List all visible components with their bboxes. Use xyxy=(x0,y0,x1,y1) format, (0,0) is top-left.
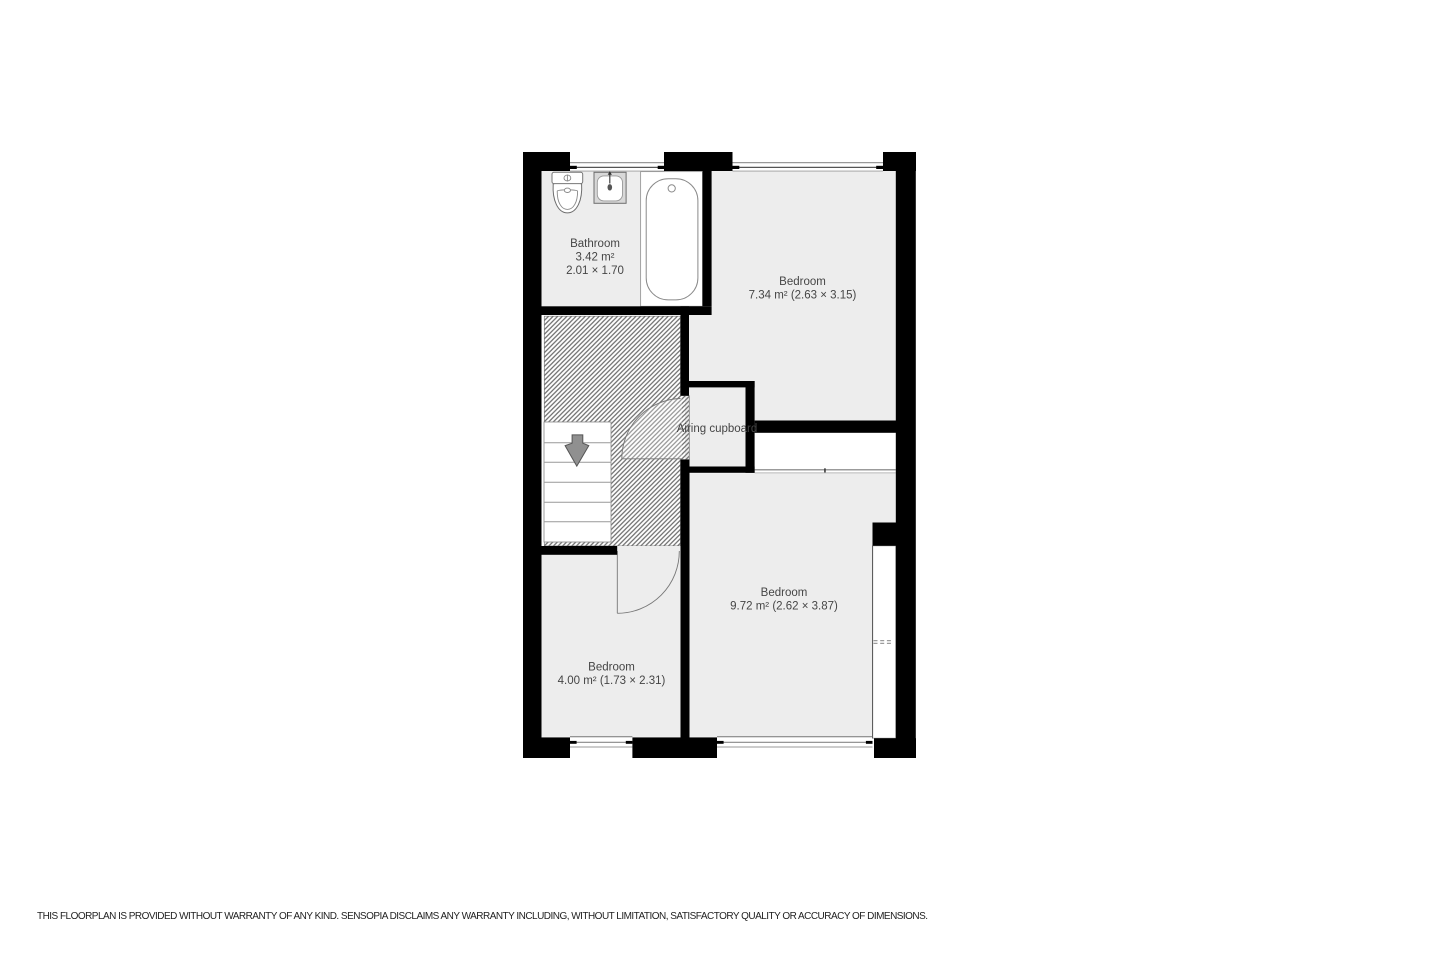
svg-text:THIS FLOORPLAN IS PROVIDED WIT: THIS FLOORPLAN IS PROVIDED WITHOUT WARRA… xyxy=(37,911,928,922)
svg-text:9.72 m² (2.62 × 3.87): 9.72 m² (2.62 × 3.87) xyxy=(730,601,838,613)
svg-text:Bedroom: Bedroom xyxy=(779,276,826,288)
svg-text:Bedroom: Bedroom xyxy=(761,587,808,599)
svg-text:4.00 m² (1.73 × 2.31): 4.00 m² (1.73 × 2.31) xyxy=(558,675,666,687)
svg-text:2.01 × 1.70: 2.01 × 1.70 xyxy=(566,265,624,277)
svg-text:7.34 m² (2.63 × 3.15): 7.34 m² (2.63 × 3.15) xyxy=(749,290,857,302)
svg-text:Airing cupboard: Airing cupboard xyxy=(677,423,758,435)
svg-text:3.42 m²: 3.42 m² xyxy=(576,252,615,264)
svg-text:Bedroom: Bedroom xyxy=(588,662,635,674)
svg-text:Bathroom: Bathroom xyxy=(570,238,620,250)
